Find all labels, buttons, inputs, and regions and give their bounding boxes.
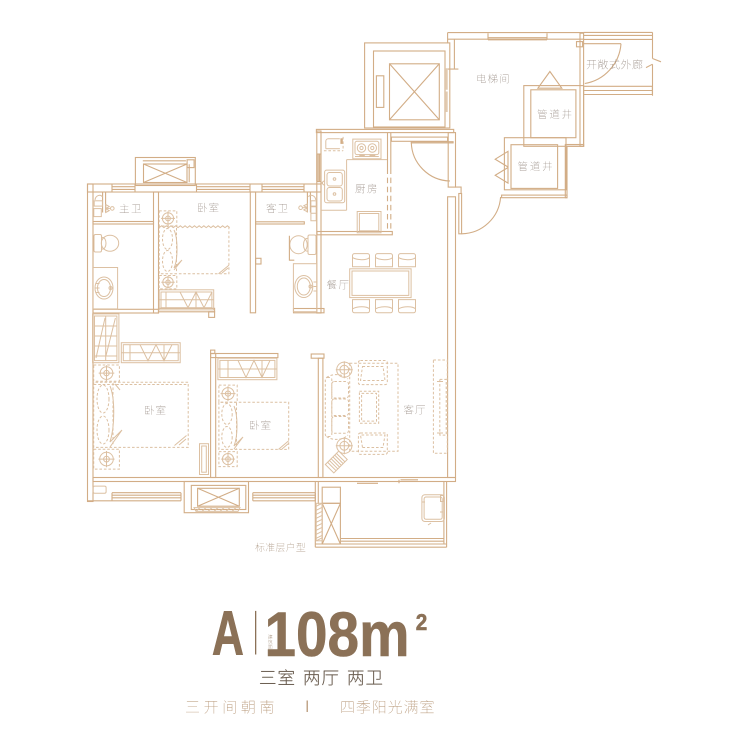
svg-text:108m2: 108m2 xyxy=(265,599,428,669)
svg-text:A: A xyxy=(212,599,244,668)
